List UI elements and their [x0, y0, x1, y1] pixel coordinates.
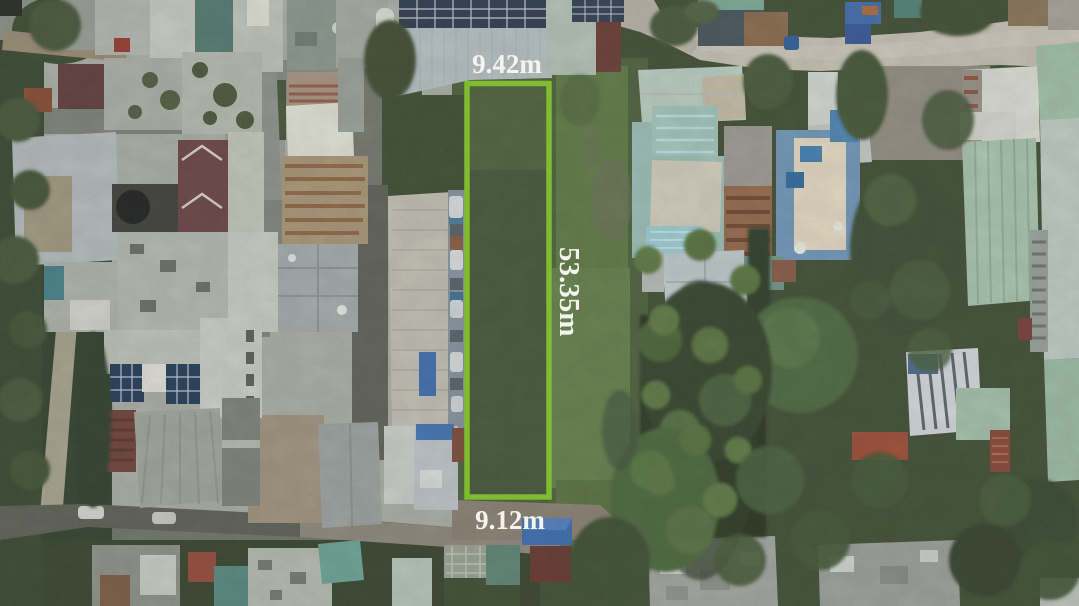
svg-text:9.12m: 9.12m	[475, 505, 545, 535]
svg-text:9.42m: 9.42m	[472, 49, 542, 79]
svg-text:53.35m: 53.35m	[553, 247, 585, 336]
